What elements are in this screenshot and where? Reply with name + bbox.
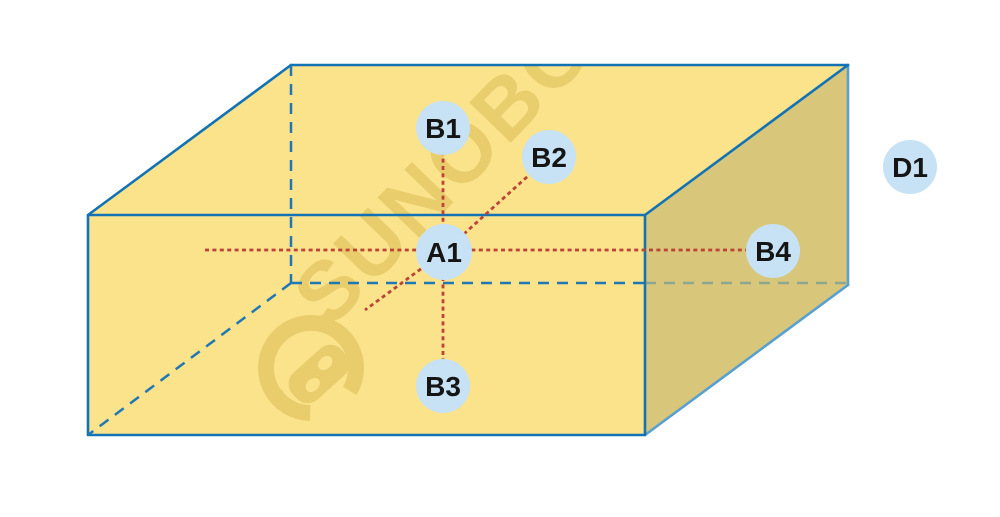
node-d1-label: D1 (892, 152, 928, 183)
node-b2-label: B2 (531, 142, 567, 173)
cuboid-diagram: SUNOBO (0, 0, 1000, 517)
node-b4-label: B4 (755, 236, 791, 267)
node-b3-label: B3 (425, 371, 461, 402)
node-b1-label: B1 (425, 113, 461, 144)
node-a1-label: A1 (426, 237, 462, 268)
diagram-canvas: SUNOBO (0, 0, 1000, 517)
